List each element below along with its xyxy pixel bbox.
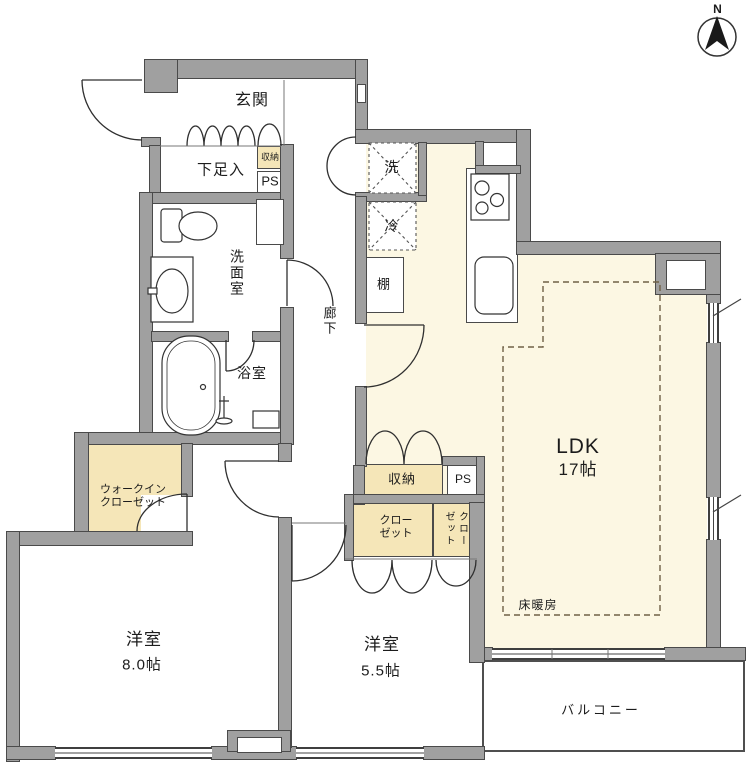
labels-layer: N 玄関 下足入 収納 PS P S 洗面室 廊下 浴室 洗 冷 棚 PS PS…: [0, 0, 753, 768]
ldk-ps-box: [666, 260, 706, 290]
closet2-col-left: ゼット: [443, 511, 455, 547]
closet2-col-right: クロー: [456, 511, 468, 547]
label-fridge: 冷: [385, 218, 400, 234]
label-closet2: ゼット クロー: [443, 511, 468, 547]
room-label-shoe-storage: 下足入: [197, 161, 245, 178]
closet-line1: クロー: [380, 514, 413, 527]
room-label-ldk-size: 17帖: [559, 460, 598, 480]
room-label-room8: 洋室: [126, 630, 162, 650]
room-label-washroom: 洗面室: [229, 249, 245, 297]
room-label-balcony: バルコニー: [561, 704, 641, 719]
room-label-ldk: LDK: [556, 435, 600, 459]
room-label-room55-size: 5.5帖: [361, 662, 401, 679]
label-shelf: 棚: [377, 278, 391, 293]
genkan-wall-window: [357, 84, 366, 103]
ps-label-middle: PS: [455, 473, 471, 487]
closet-line2: ゼット: [380, 527, 413, 540]
ps-label-entrance: PS: [261, 175, 278, 190]
room-label-bathroom: 浴室: [237, 365, 267, 381]
compass-n-label: N: [713, 3, 723, 17]
wic-line2: クローゼット: [100, 496, 166, 509]
kitchen-ps-box: [483, 142, 517, 166]
label-mid-storage: 収納: [388, 473, 416, 488]
floor-plan: N 玄関 下足入 収納 PS P S 洗面室 廊下 浴室 洗 冷 棚 PS PS…: [0, 0, 753, 768]
room-label-entrance-storage: 収納: [261, 152, 279, 162]
bottom-ps-box: [237, 737, 282, 753]
label-floor-heating: 床暖房: [518, 599, 557, 613]
room-label-room8-size: 8.0帖: [122, 656, 162, 673]
wic-line1: ウォークイン: [100, 483, 166, 496]
washroom-ps-box: [256, 199, 284, 245]
room-label-hallway: 廊下: [321, 306, 336, 336]
label-washer: 洗: [385, 159, 400, 175]
room-label-room55: 洋室: [364, 635, 400, 655]
room-label-wic: ウォークイン クローゼット: [100, 483, 166, 508]
room-label-genkan: 玄関: [235, 92, 269, 110]
label-closet: クロー ゼット: [380, 514, 413, 539]
